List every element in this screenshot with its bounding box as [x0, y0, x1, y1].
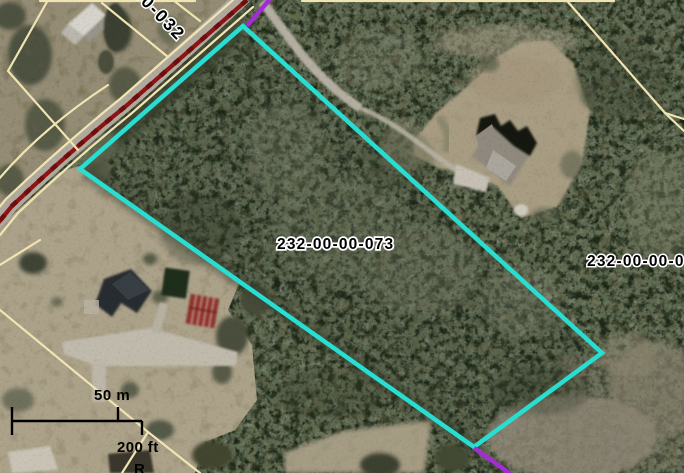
svg-text:50 m: 50 m — [94, 387, 130, 404]
svg-text:R: R — [134, 461, 145, 473]
svg-text:200 ft: 200 ft — [117, 439, 159, 456]
svg-text:232-00-00-00: 232-00-00-00 — [587, 253, 684, 270]
svg-text:232-00-00-073: 232-00-00-073 — [277, 236, 394, 253]
